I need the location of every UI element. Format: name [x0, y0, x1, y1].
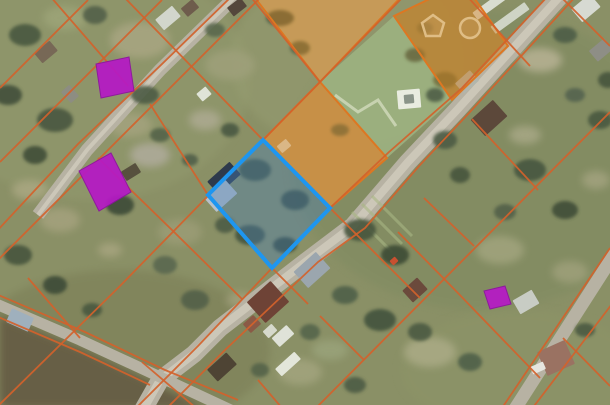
ground-patch [552, 261, 588, 283]
ground-patch [98, 243, 122, 257]
tree-canopy [4, 245, 32, 265]
tree-canopy [9, 24, 41, 46]
tree-canopy [83, 6, 107, 24]
ground-patch [110, 22, 170, 58]
tree-canopy [23, 146, 47, 164]
tree-canopy [43, 276, 67, 294]
ground-patch [130, 143, 170, 167]
tree-canopy [458, 353, 482, 371]
satellite-map-canvas[interactable] [0, 0, 610, 405]
tree-canopy [300, 324, 320, 340]
tree-canopy [153, 256, 177, 274]
ground-patch [312, 340, 348, 360]
ground-patch [582, 171, 610, 189]
ground-patch [404, 337, 456, 367]
tree-canopy [221, 123, 239, 137]
tree-canopy [450, 167, 470, 183]
tree-canopy [552, 201, 578, 219]
tree-canopy [332, 286, 358, 304]
tree-canopy [182, 154, 198, 166]
building-marker[interactable] [96, 57, 134, 98]
tree-canopy [426, 88, 444, 102]
ground-patch [205, 50, 255, 80]
ground-patch [509, 126, 541, 144]
tree-canopy [181, 290, 209, 310]
tree-canopy [364, 309, 396, 331]
tree-canopy [251, 363, 269, 377]
tree-canopy [82, 303, 102, 317]
ground-patch [189, 110, 221, 130]
tree-canopy [565, 88, 585, 102]
tree-canopy [344, 377, 366, 393]
ground-patch [43, 6, 87, 30]
tree-canopy [553, 27, 577, 43]
cadastral-map-viewport[interactable] [0, 0, 610, 405]
tree-canopy [408, 323, 432, 341]
building-roof [404, 94, 415, 104]
